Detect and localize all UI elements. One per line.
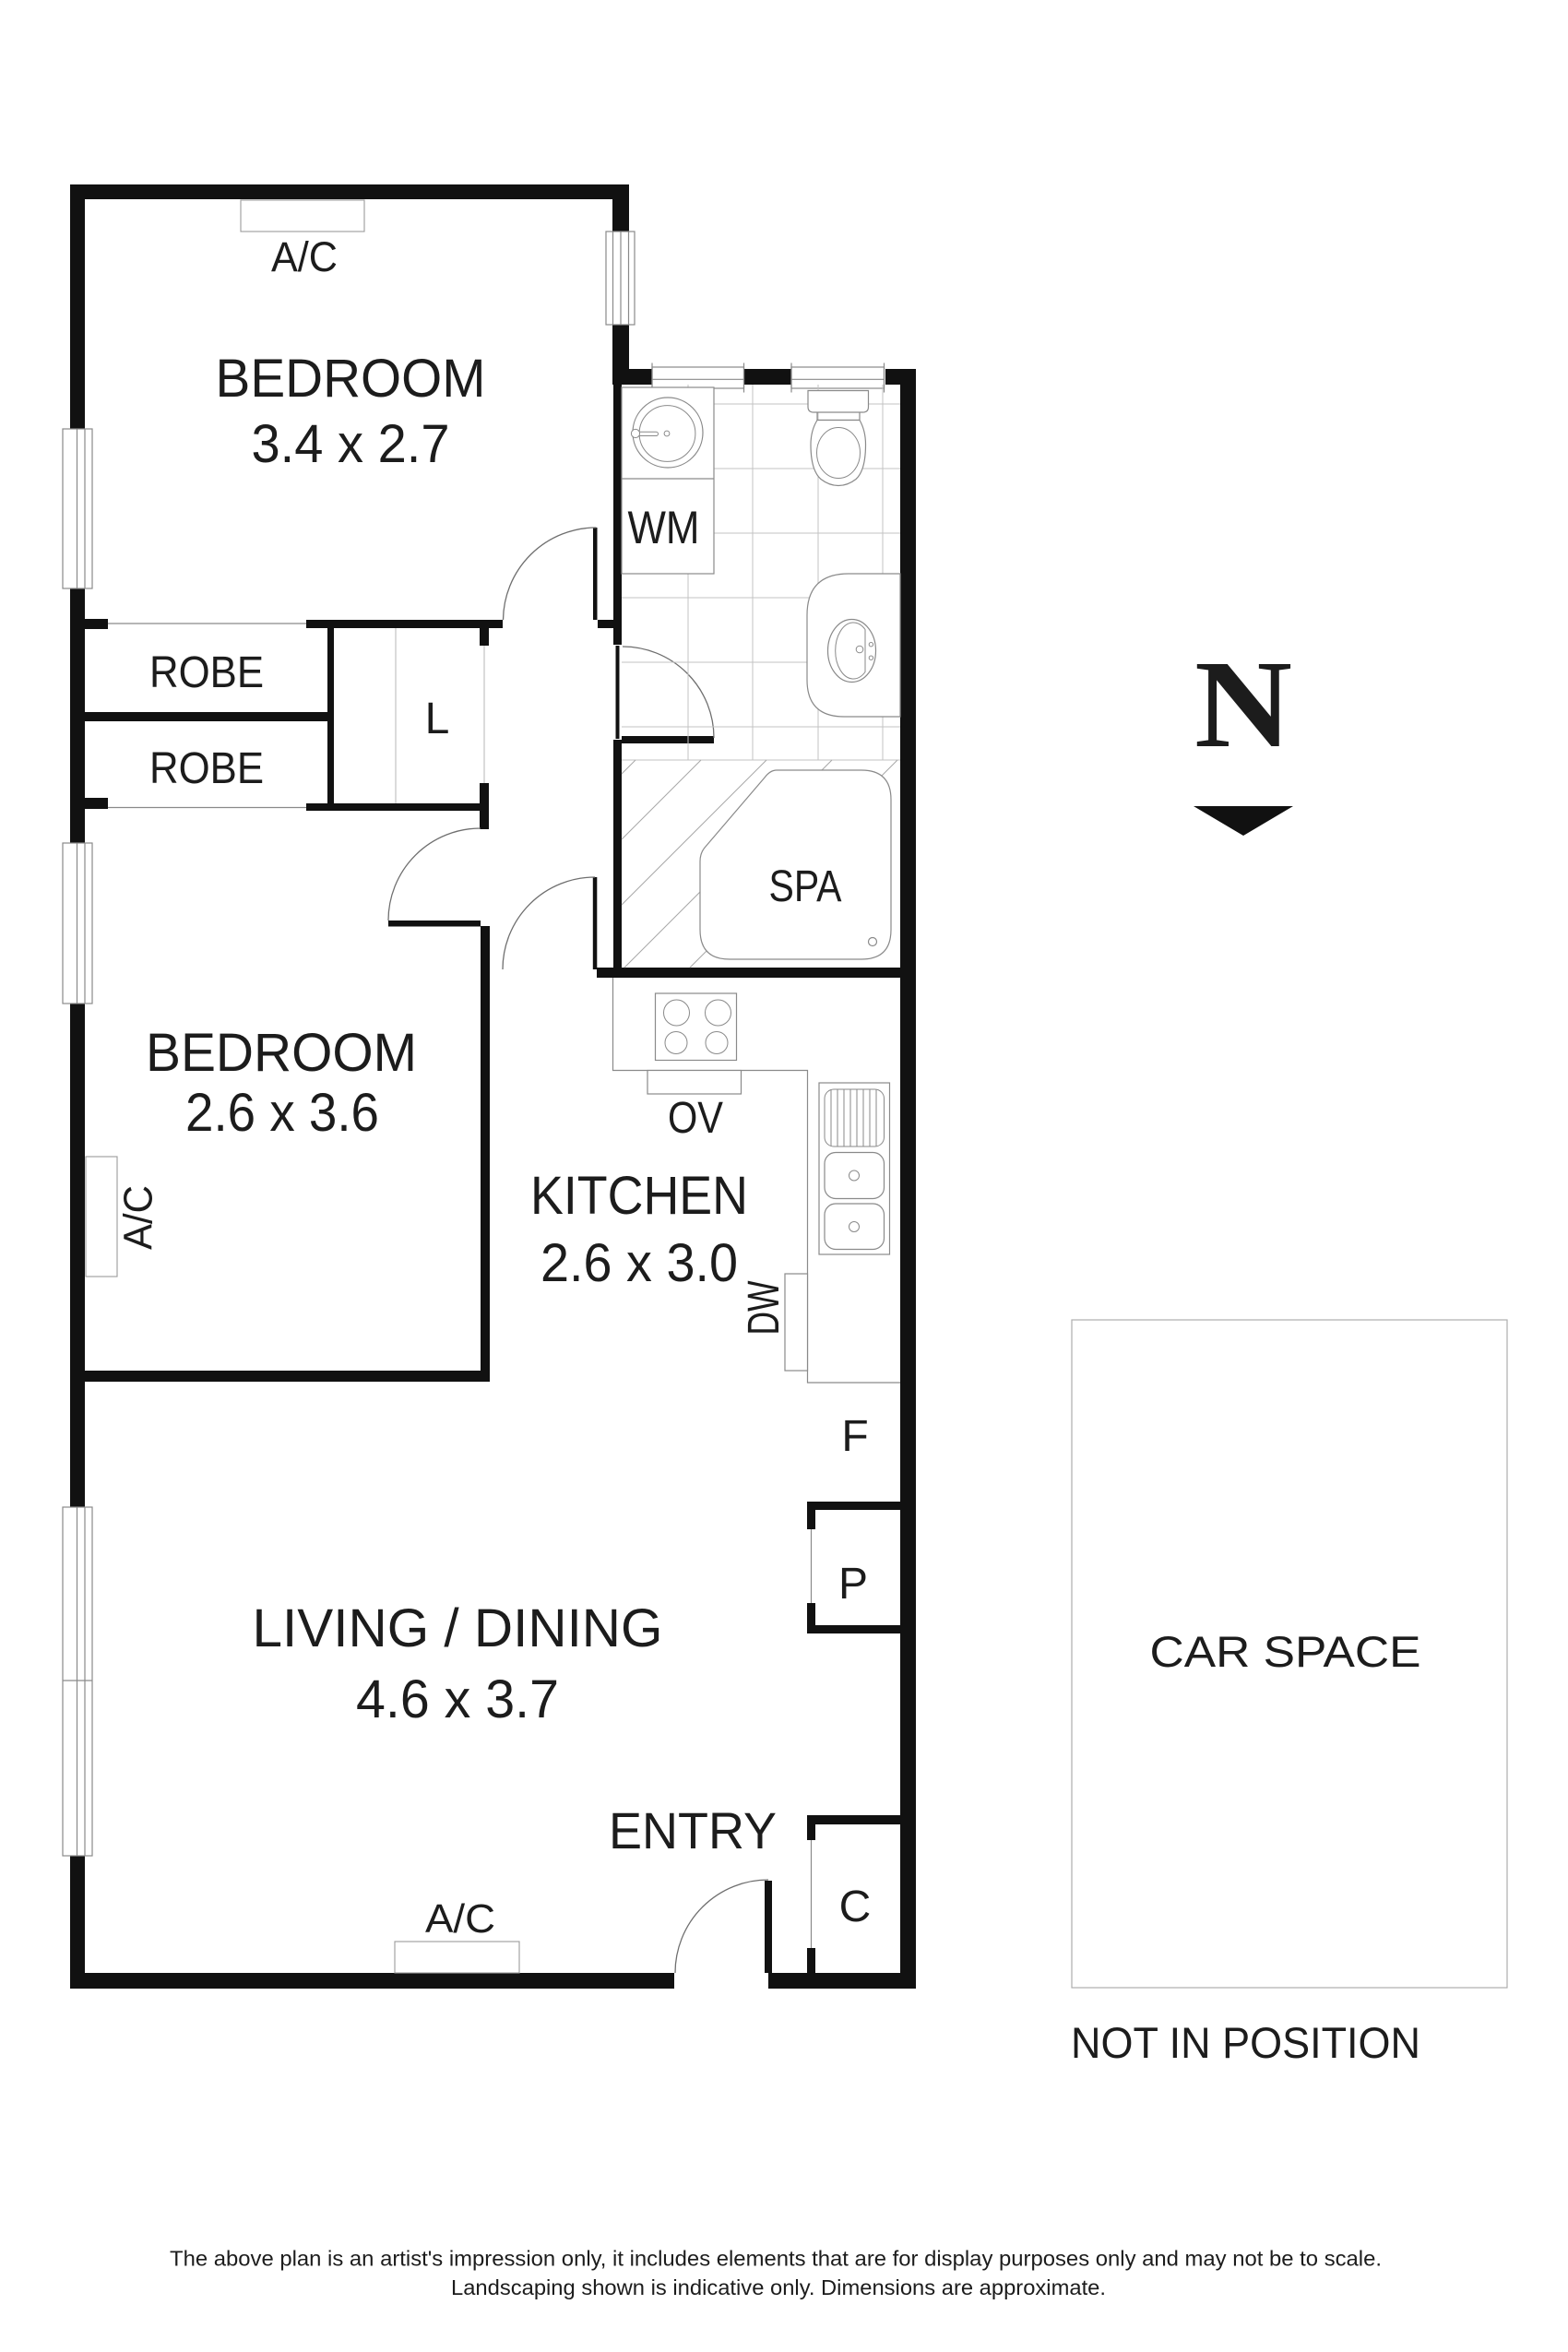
svg-text:C: C	[839, 1883, 872, 1931]
svg-text:The above plan is an artist's: The above plan is an artist's impression…	[170, 2247, 1382, 2271]
svg-text:CAR SPACE: CAR SPACE	[1150, 1627, 1421, 1676]
svg-text:ROBE: ROBE	[149, 744, 264, 793]
svg-text:2.6 x 3.0: 2.6 x 3.0	[540, 1233, 738, 1293]
svg-text:A/C: A/C	[425, 1896, 495, 1942]
svg-text:NOT IN POSITION: NOT IN POSITION	[1071, 2018, 1420, 2067]
svg-text:KITCHEN: KITCHEN	[530, 1166, 748, 1226]
svg-text:A/C: A/C	[116, 1185, 161, 1250]
svg-text:BEDROOM: BEDROOM	[216, 349, 486, 409]
svg-text:WM: WM	[628, 502, 700, 553]
svg-text:4.6 x 3.7: 4.6 x 3.7	[356, 1669, 559, 1729]
svg-text:F: F	[841, 1412, 868, 1461]
svg-text:A/C: A/C	[271, 233, 338, 280]
svg-text:DW: DW	[740, 1280, 789, 1336]
svg-text:P: P	[838, 1560, 868, 1609]
svg-text:N: N	[1194, 636, 1292, 774]
svg-text:2.6 x 3.6: 2.6 x 3.6	[185, 1083, 379, 1143]
svg-text:OV: OV	[668, 1094, 723, 1143]
svg-text:ENTRY: ENTRY	[609, 1801, 777, 1859]
svg-text:L: L	[425, 695, 450, 743]
svg-text:BEDROOM: BEDROOM	[146, 1023, 417, 1083]
svg-text:3.4 x 2.7: 3.4 x 2.7	[252, 414, 450, 474]
svg-text:ROBE: ROBE	[149, 648, 264, 697]
svg-text:Landscaping shown is indicativ: Landscaping shown is indicative only. Di…	[451, 2275, 1106, 2299]
svg-text:SPA: SPA	[769, 862, 842, 911]
svg-text:LIVING / DINING: LIVING / DINING	[253, 1598, 663, 1658]
